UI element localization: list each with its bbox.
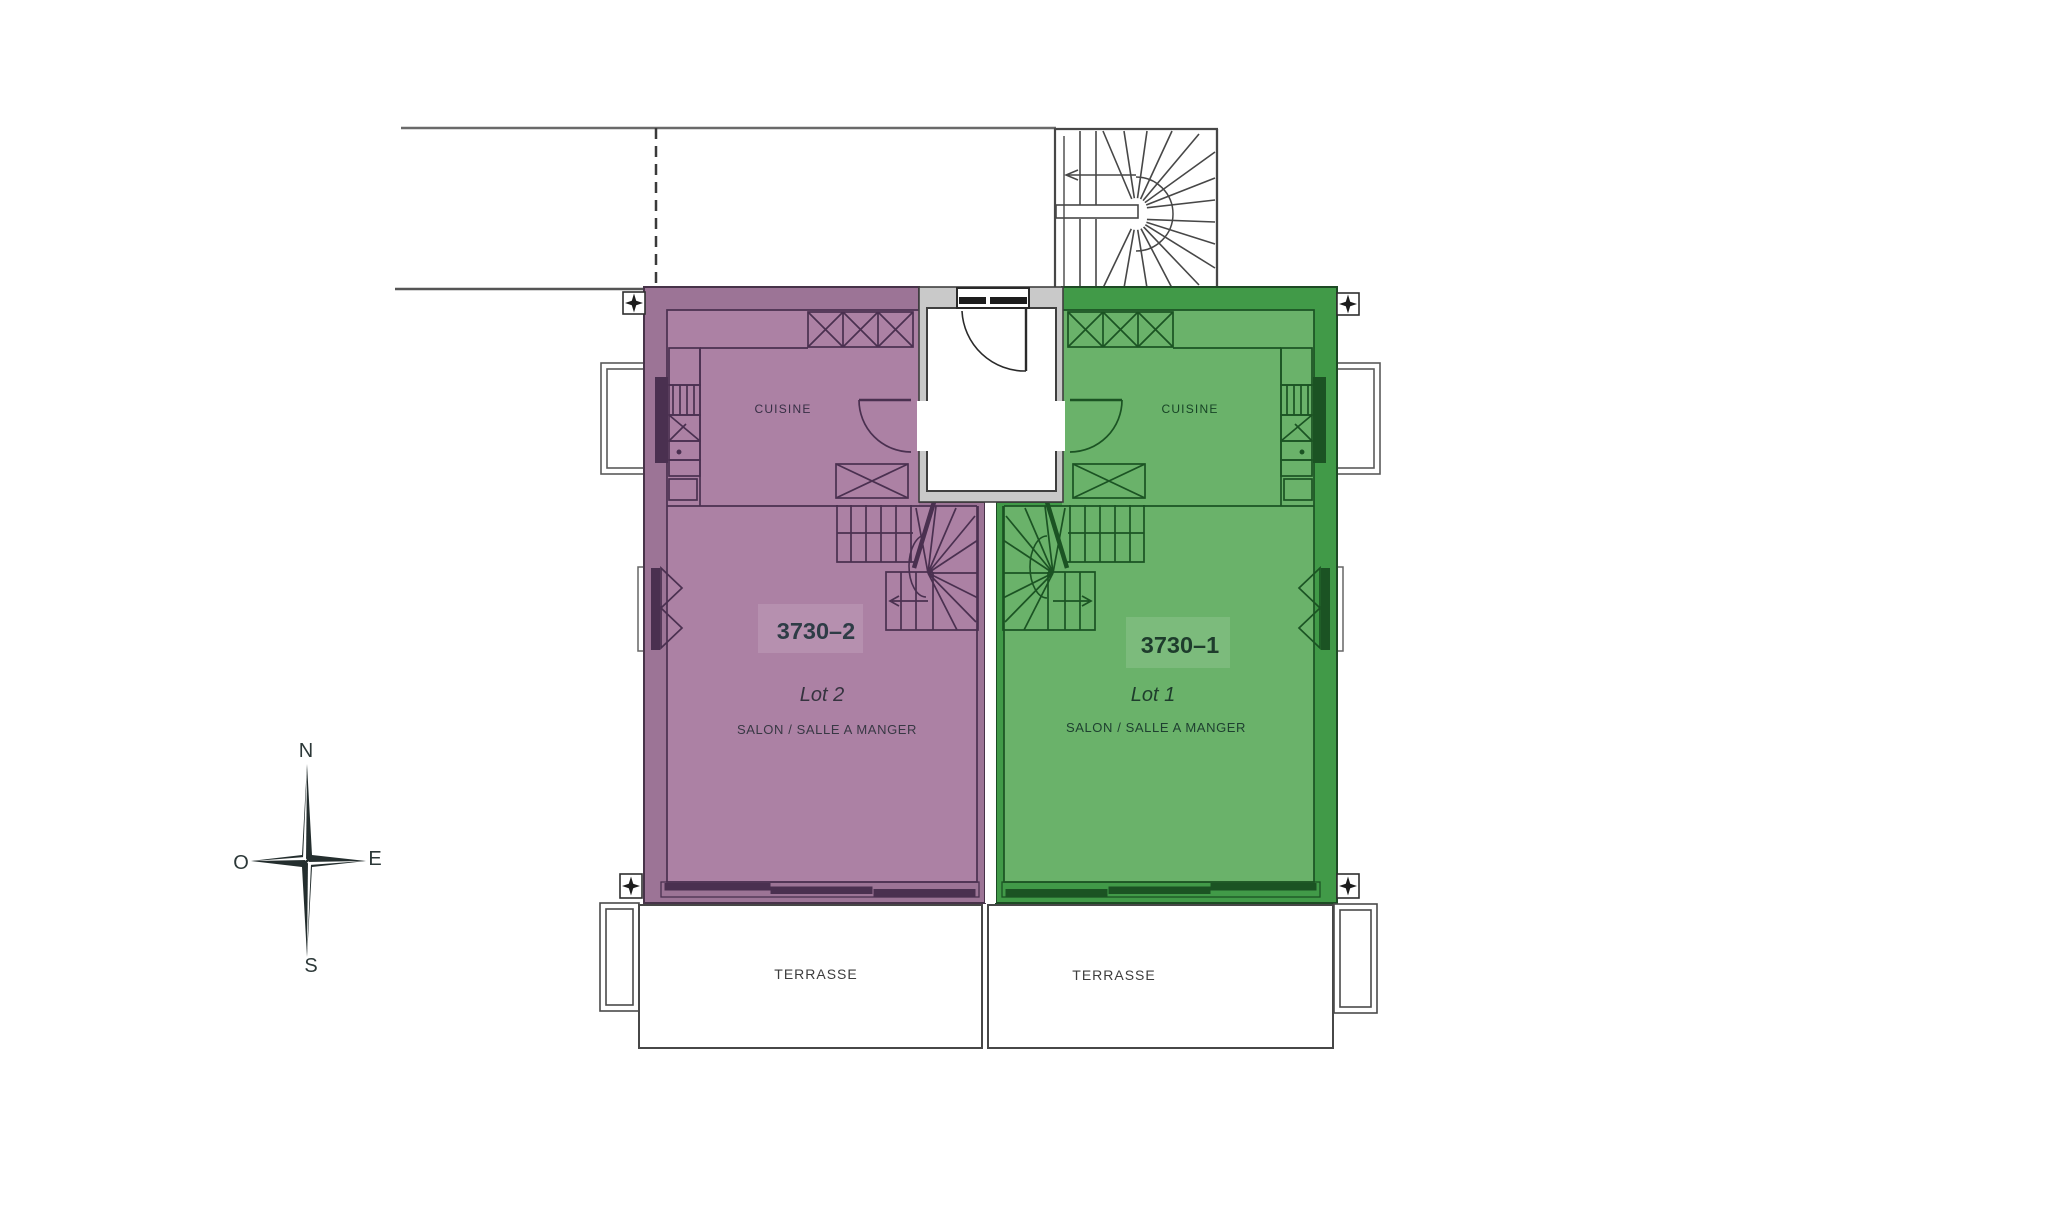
- svg-text:SALON / SALLE A MANGER: SALON / SALLE A MANGER: [737, 722, 917, 737]
- svg-text:3730–1: 3730–1: [1141, 632, 1219, 658]
- svg-text:SALON / SALLE A MANGER: SALON / SALLE A MANGER: [1066, 720, 1246, 735]
- svg-text:N: N: [299, 740, 313, 762]
- svg-text:Lot 2: Lot 2: [800, 684, 844, 706]
- svg-text:CUISINE: CUISINE: [1161, 402, 1218, 416]
- svg-text:O: O: [233, 852, 249, 874]
- svg-text:CUISINE: CUISINE: [754, 402, 811, 416]
- svg-text:Lot 1: Lot 1: [1131, 684, 1175, 706]
- svg-text:3730–2: 3730–2: [777, 618, 855, 644]
- svg-text:E: E: [368, 848, 381, 870]
- svg-text:S: S: [304, 955, 317, 977]
- svg-text:TERRASSE: TERRASSE: [1072, 967, 1155, 983]
- svg-text:TERRASSE: TERRASSE: [774, 966, 857, 982]
